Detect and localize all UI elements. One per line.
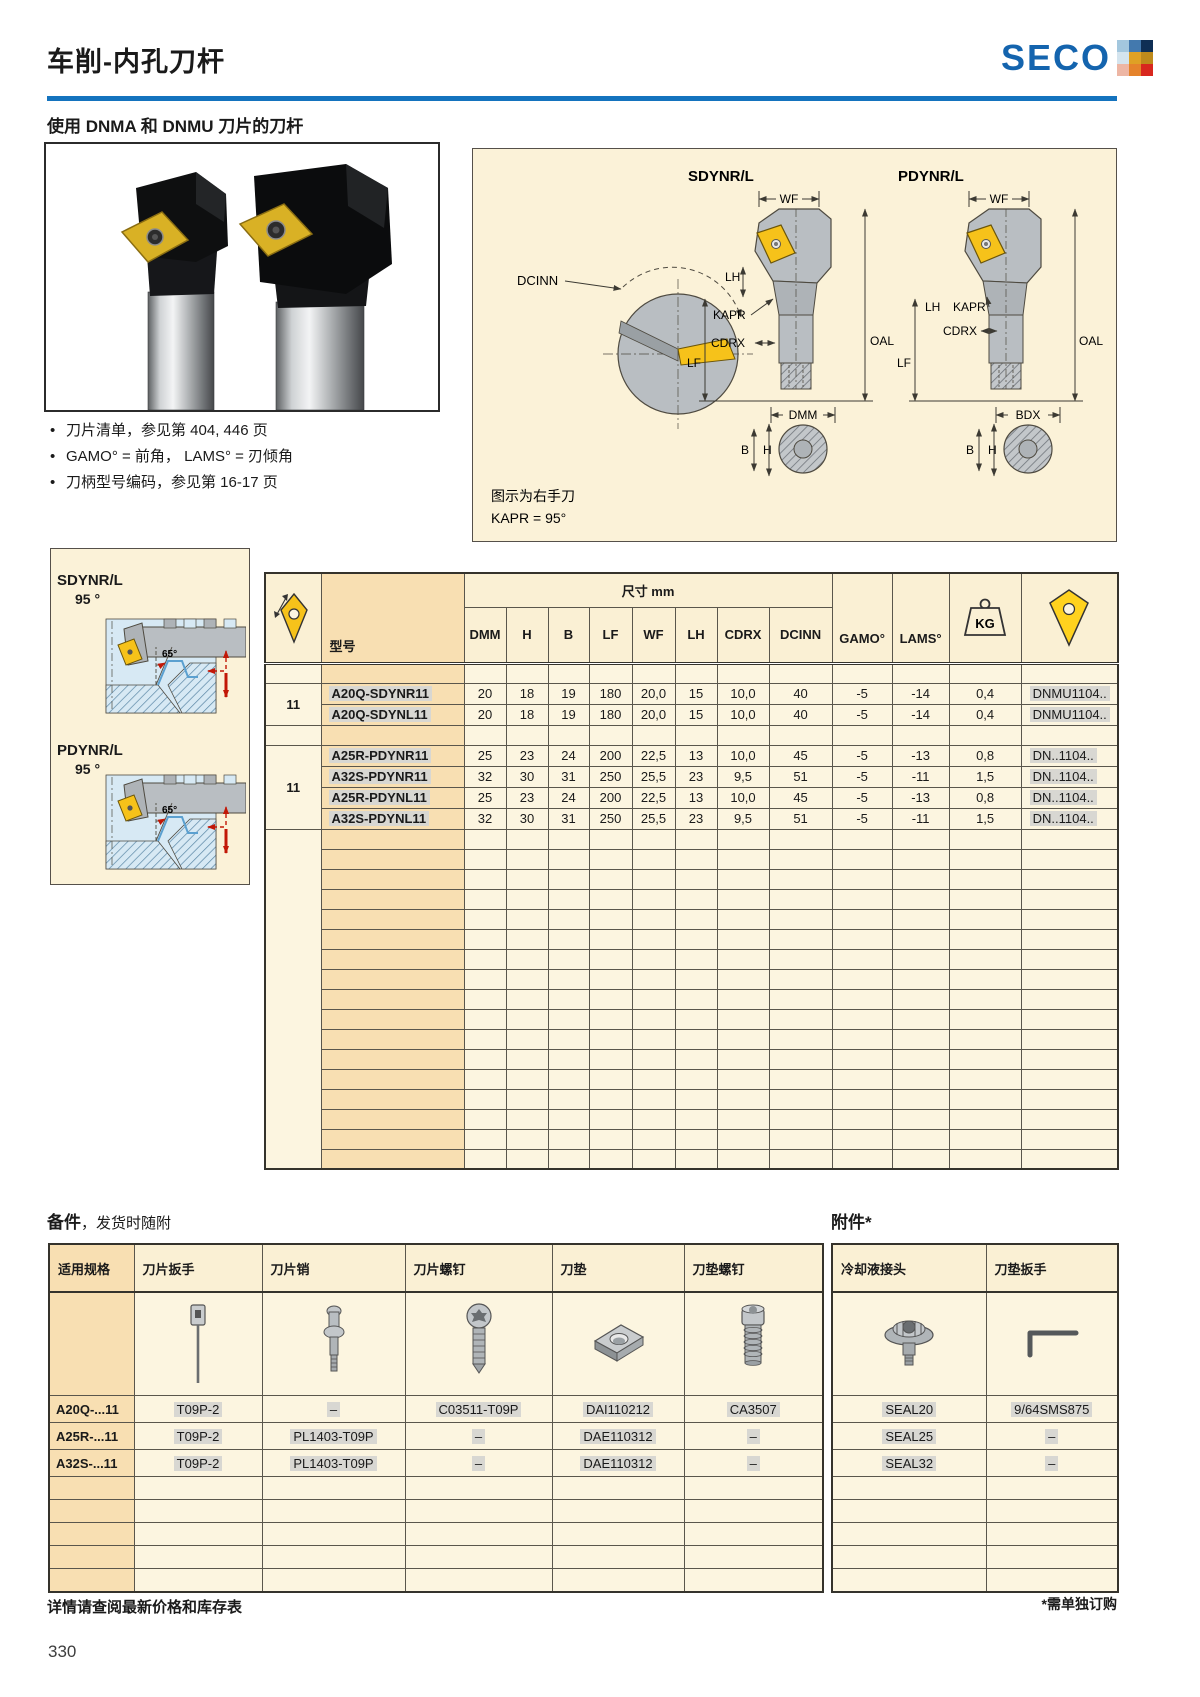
table-cell: 13 [675,745,717,766]
insert-size-header [265,573,321,663]
table-cell: 25 [464,745,506,766]
table-cell [632,969,675,989]
page-number: 330 [48,1642,76,1662]
table-cell [769,1129,832,1149]
table-cell [134,1477,262,1500]
table-cell [832,829,892,849]
table-row: 11A25R-PDYNR1125232420022,51310,045-5-13… [265,745,1118,766]
table-cell: 0,8 [949,787,1021,808]
empty-row [265,869,1118,889]
style2-angle: 95 ° [57,761,100,777]
empty-row [832,1477,1118,1500]
table-cell [405,1569,552,1592]
accessories-table: 冷却液接头 刀垫扳手 [831,1243,1119,1593]
table-cell [675,1089,717,1109]
table-cell [632,989,675,1009]
table-cell [632,725,675,745]
table-cell [717,909,769,929]
table-cell [675,1109,717,1129]
kapr-note: KAPR = 95° [491,510,566,526]
table-cell [832,1477,986,1500]
spares-icon-row [49,1292,823,1396]
table-cell [265,829,321,1169]
table-cell: – [684,1450,823,1477]
table-cell [49,1523,134,1546]
boring-bars-photo-icon [46,144,438,410]
table-cell [769,663,832,683]
empty-row [265,1129,1118,1149]
shim-icon [583,1299,653,1389]
table-cell [832,1149,892,1169]
lams-header: LAMS° [892,573,949,663]
table-cell [321,989,464,1009]
accessories-row: SEAL25– [832,1423,1118,1450]
table-cell: 10,0 [717,704,769,725]
table-cell [892,1069,949,1089]
style1-sketch-icon: 65° [104,607,246,725]
accessories-row: SEAL209/64SMS875 [832,1396,1118,1423]
empty-row [832,1569,1118,1592]
table-cell [769,1049,832,1069]
lf-label: LF [897,356,911,370]
h-label: H [988,443,997,457]
table-cell: DN..1104.. [1021,787,1118,808]
table-cell [321,1129,464,1149]
table-cell [1021,725,1118,745]
table-cell [464,1149,506,1169]
table-cell [675,1069,717,1089]
table-cell [321,869,464,889]
spares-header-row: 适用规格 刀片扳手 刀片销 刀片螺钉 刀垫 刀垫螺钉 [49,1244,823,1292]
footer-order-note: *需单独订购 [1042,1594,1117,1614]
table-cell: DN..1104.. [1021,745,1118,766]
table-cell [892,929,949,949]
table-cell [632,849,675,869]
table-cell [675,1029,717,1049]
table-cell [589,869,632,889]
table-cell [506,1049,548,1069]
accessories-col-header: 冷却液接头 [832,1244,986,1292]
table-cell [986,1523,1118,1546]
col-header: CDRX [717,607,769,663]
style2-name: PDYNR/L [57,741,123,760]
table-cell [589,1089,632,1109]
table-cell: A32S-...11 [49,1450,134,1477]
table-cell [464,1009,506,1029]
table-cell [1021,869,1118,889]
table-cell: 1,5 [949,808,1021,829]
table-cell [892,725,949,745]
empty-row [265,1009,1118,1029]
table-cell [1021,663,1118,683]
col-header: DCINN [769,607,832,663]
table-cell [506,989,548,1009]
kapr-label: KAPR [953,300,986,314]
table-cell [506,1109,548,1129]
table-cell [675,1149,717,1169]
table-cell [552,1523,684,1546]
col-header: H [506,607,548,663]
table-cell [134,1569,262,1592]
table-cell [717,1009,769,1029]
table-cell [717,829,769,849]
table-cell: 32 [464,808,506,829]
table-cell: 250 [589,808,632,829]
spares-title-bold: 备件 [47,1213,81,1232]
table-cell [675,849,717,869]
table-cell: 180 [589,704,632,725]
table-cell [832,969,892,989]
table-cell [717,1109,769,1129]
table-cell: A25R-PDYNL11 [321,787,464,808]
table-cell [464,889,506,909]
main-spec-table: 型号 尺寸 mm GAMO° LAMS° KG DMM H B [264,572,1119,1170]
table-cell [506,725,548,745]
table-cell [717,869,769,889]
svg-text:KG: KG [975,616,995,631]
accessories-title: 附件* [831,1208,872,1233]
table-cell [832,1500,986,1523]
table-cell [832,1109,892,1129]
table-cell [1021,929,1118,949]
table-cell [1021,849,1118,869]
spares-title: 备件，发货时随附 [47,1208,171,1233]
table-cell [632,829,675,849]
table-cell: A20Q-...11 [49,1396,134,1423]
table-cell: 25,5 [632,808,675,829]
table-cell [632,1009,675,1029]
shim-cell [552,1292,684,1396]
style1-tip-angle: 65° [162,649,177,660]
table-cell [892,1089,949,1109]
empty-row [265,949,1118,969]
table-cell [321,1089,464,1109]
table-cell [892,989,949,1009]
table-cell [548,929,589,949]
table-cell [717,1129,769,1149]
table-cell [262,1546,405,1569]
table-cell: A25R-...11 [49,1423,134,1450]
table-cell [1021,909,1118,929]
table-cell [548,1049,589,1069]
table-cell [892,663,949,683]
table-cell: 15 [675,704,717,725]
table-cell [769,989,832,1009]
table-cell [949,1009,1021,1029]
table-cell: 22,5 [632,787,675,808]
table-cell: -14 [892,683,949,704]
empty-row [265,889,1118,909]
table-cell [464,663,506,683]
table-cell [464,1089,506,1109]
table-cell [321,949,464,969]
table-cell [321,1029,464,1049]
spares-icon-spacer [49,1292,134,1396]
gamo-header: GAMO° [832,573,892,663]
table-cell: CA3507 [684,1396,823,1423]
table-cell: A20Q-SDYNR11 [321,683,464,704]
accessories-col-header: 刀垫扳手 [986,1244,1118,1292]
insert-shape-icon [272,590,314,646]
table-cell: SEAL32 [832,1450,986,1477]
b-label: B [966,443,974,457]
empty-row [49,1500,823,1523]
table-cell [949,869,1021,889]
table-cell [632,1069,675,1089]
table-cell [589,1049,632,1069]
table-cell [1021,969,1118,989]
table-cell [769,849,832,869]
table-row: A25R-PDYNL1125232420022,51310,045-5-130,… [265,787,1118,808]
table-cell: 22,5 [632,745,675,766]
table-row: 11A20Q-SDYNR1120181918020,01510,040-5-14… [265,683,1118,704]
table-cell [832,663,892,683]
table-cell [589,969,632,989]
table-cell [1021,989,1118,1009]
table-cell: -5 [832,787,892,808]
table-cell: -11 [892,808,949,829]
dimension-diagram-panel: SDYNR/L PDYNR/L DCINN WF LH KAPR CDRX LF… [472,148,1117,542]
empty-row [49,1477,823,1500]
weight-header: KG [949,573,1021,663]
empty-row [832,1500,1118,1523]
table-cell [589,1149,632,1169]
table-cell [632,949,675,969]
table-cell [589,663,632,683]
table-cell [769,1009,832,1029]
table-cell [717,949,769,969]
spares-col-header: 刀垫螺钉 [684,1244,823,1292]
torque-wrench-cell [134,1292,262,1396]
table-cell [949,1049,1021,1069]
empty-row [265,969,1118,989]
table-cell [717,989,769,1009]
empty-row [832,1523,1118,1546]
table-cell [832,1089,892,1109]
table-cell [832,949,892,969]
table-cell: 200 [589,745,632,766]
table-cell: DAE110312 [552,1423,684,1450]
table-cell [949,1089,1021,1109]
table-cell [832,1523,986,1546]
insert-code-header [1021,573,1118,663]
table-cell [832,1029,892,1049]
table-cell [321,1009,464,1029]
table-cell [717,929,769,949]
table-cell [986,1569,1118,1592]
table-cell: T09P-2 [134,1396,262,1423]
table-cell: 9,5 [717,808,769,829]
table-cell [506,1009,548,1029]
table-cell: – [405,1450,552,1477]
table-cell: DNMU1104.. [1021,704,1118,725]
table-cell [832,929,892,949]
table-cell [769,969,832,989]
table-cell [949,949,1021,969]
table-cell [949,889,1021,909]
table-cell: -5 [832,745,892,766]
table-cell [589,909,632,929]
notes-list: •刀片清单，参见第 404, 446 页 •GAMO° = 前角， LAMS° … [50,418,293,496]
table-cell [506,869,548,889]
table-cell [632,929,675,949]
bdx-label: BDX [1016,408,1041,422]
table-cell [675,725,717,745]
wf-label: WF [990,192,1009,206]
empty-row [49,1523,823,1546]
col-header: LF [589,607,632,663]
bullet-icon: • [50,418,66,444]
table-cell: 20 [464,704,506,725]
table-cell: -13 [892,745,949,766]
table-cell [675,1009,717,1029]
table-cell [949,849,1021,869]
table-cell [632,1089,675,1109]
bullet-icon: • [50,444,66,470]
table-cell [321,909,464,929]
table-cell [506,849,548,869]
table-cell [589,1009,632,1029]
col-header: B [548,607,589,663]
table-cell [675,949,717,969]
table-cell [832,1049,892,1069]
table-cell [548,909,589,929]
table-cell [949,1029,1021,1049]
cdrx-label: CDRX [711,336,745,350]
table-cell [321,829,464,849]
table-cell [769,869,832,889]
mosaic-square [1129,52,1141,64]
table-cell [769,1069,832,1089]
table-cell: – [986,1450,1118,1477]
dmm-label: DMM [789,408,818,422]
table-cell [832,909,892,929]
table-cell [949,1069,1021,1089]
table-cell [321,1149,464,1169]
table-cell [986,1477,1118,1500]
empty-row [265,829,1118,849]
table-cell [892,969,949,989]
table-cell [548,1009,589,1029]
table-cell [548,869,589,889]
table-cell: SEAL25 [832,1423,986,1450]
table-cell [832,1129,892,1149]
table-cell [769,1089,832,1109]
table-cell [265,725,321,745]
shim-wrench-cell [986,1292,1118,1396]
table-cell: 9/64SMS875 [986,1396,1118,1423]
empty-row [265,849,1118,869]
table-cell [717,1089,769,1109]
table-cell [632,663,675,683]
empty-row [49,1546,823,1569]
table-cell: -5 [832,808,892,829]
table-cell [832,1069,892,1089]
table-cell: -11 [892,766,949,787]
table-cell [49,1500,134,1523]
seco-logo: SECO [1001,40,1153,76]
spares-col-header: 刀片螺钉 [405,1244,552,1292]
table-cell [321,1069,464,1089]
table-cell: 45 [769,787,832,808]
table-cell [405,1477,552,1500]
table-cell [949,909,1021,929]
table-cell [892,869,949,889]
table-cell [717,1029,769,1049]
table-cell [832,1009,892,1029]
table-cell [832,725,892,745]
table-cell [949,989,1021,1009]
spares-table-rows: A20Q-...11T09P-2–C03511-T09PDAI110212CA3… [49,1292,823,1592]
table-cell: 1,5 [949,766,1021,787]
table-cell [684,1546,823,1569]
table-cell [464,1049,506,1069]
table-cell: DAI110212 [552,1396,684,1423]
table-cell [675,929,717,949]
wf-label: WF [780,192,799,206]
table-cell [506,1069,548,1089]
empty-row [265,1069,1118,1089]
kg-weight-icon: KG [962,597,1008,639]
table-row: A20Q-SDYNL1120181918020,01510,040-5-140,… [265,704,1118,725]
table-cell: 18 [506,704,548,725]
table-cell [769,1149,832,1169]
mosaic-square [1141,64,1153,76]
table-cell: 40 [769,683,832,704]
table-cell [949,1149,1021,1169]
col-header: WF [632,607,675,663]
table-cell: 40 [769,704,832,725]
spares-row: A25R-...11T09P-2PL1403-T09P–DAE110312– [49,1423,823,1450]
table-cell: 13 [675,787,717,808]
seco-wordmark: SECO [1001,40,1111,76]
table-cell [1021,1149,1118,1169]
table-cell [265,663,321,683]
table-cell [321,929,464,949]
table-cell: 19 [548,683,589,704]
style2-tip-angle: 65° [162,805,177,816]
coolant-connector-icon [869,1299,949,1389]
table-cell: A32S-PDYNR11 [321,766,464,787]
empty-row [265,1089,1118,1109]
table-cell: 51 [769,808,832,829]
torque-wrench-icon [163,1299,233,1389]
table-cell [717,889,769,909]
table-cell [321,1109,464,1129]
lf-label: LF [687,356,701,370]
spacer-row [265,663,1118,683]
table-cell [986,1500,1118,1523]
shim-screw-icon [718,1299,788,1389]
table-cell [548,829,589,849]
style1-angle: 95 ° [57,591,100,607]
table-cell: 15 [675,683,717,704]
table-cell [684,1523,823,1546]
table-cell [506,889,548,909]
table-cell [675,1129,717,1149]
table-cell: 31 [548,808,589,829]
table-cell: A20Q-SDYNL11 [321,704,464,725]
table-cell: 11 [265,683,321,725]
spacer-row [265,725,1118,745]
table-cell: A25R-PDYNR11 [321,745,464,766]
table-cell: DN..1104.. [1021,808,1118,829]
table-cell [134,1546,262,1569]
bullet-icon: • [50,470,66,496]
table-cell [892,1049,949,1069]
table-cell [632,1109,675,1129]
table-cell [49,1569,134,1592]
